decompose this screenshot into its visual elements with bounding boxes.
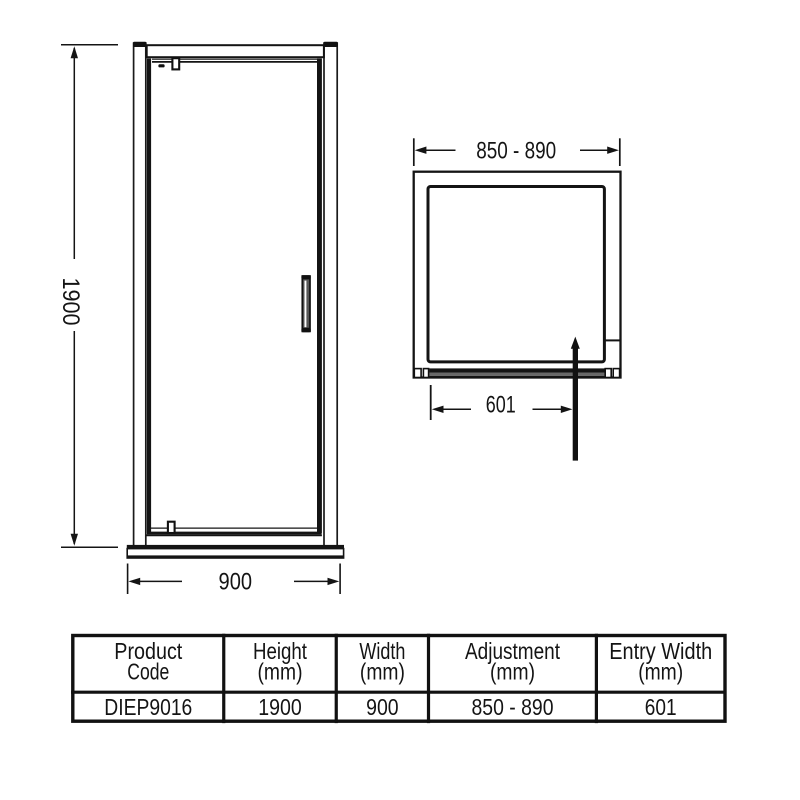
svg-text:850 - 890: 850 - 890 [472, 694, 554, 720]
svg-text:601: 601 [645, 694, 677, 720]
svg-text:DIEP9016: DIEP9016 [104, 694, 192, 720]
svg-text:1900: 1900 [57, 278, 84, 326]
svg-text:(mm): (mm) [360, 658, 405, 684]
svg-text:(mm): (mm) [258, 658, 303, 684]
svg-text:(mm): (mm) [638, 658, 683, 684]
svg-text:Code: Code [127, 658, 169, 684]
svg-text:900: 900 [366, 694, 399, 720]
svg-text:850 - 890: 850 - 890 [476, 138, 556, 165]
svg-text:900: 900 [219, 569, 253, 596]
svg-text:1900: 1900 [258, 694, 302, 720]
svg-text:601: 601 [486, 391, 516, 418]
svg-text:(mm): (mm) [490, 658, 535, 684]
